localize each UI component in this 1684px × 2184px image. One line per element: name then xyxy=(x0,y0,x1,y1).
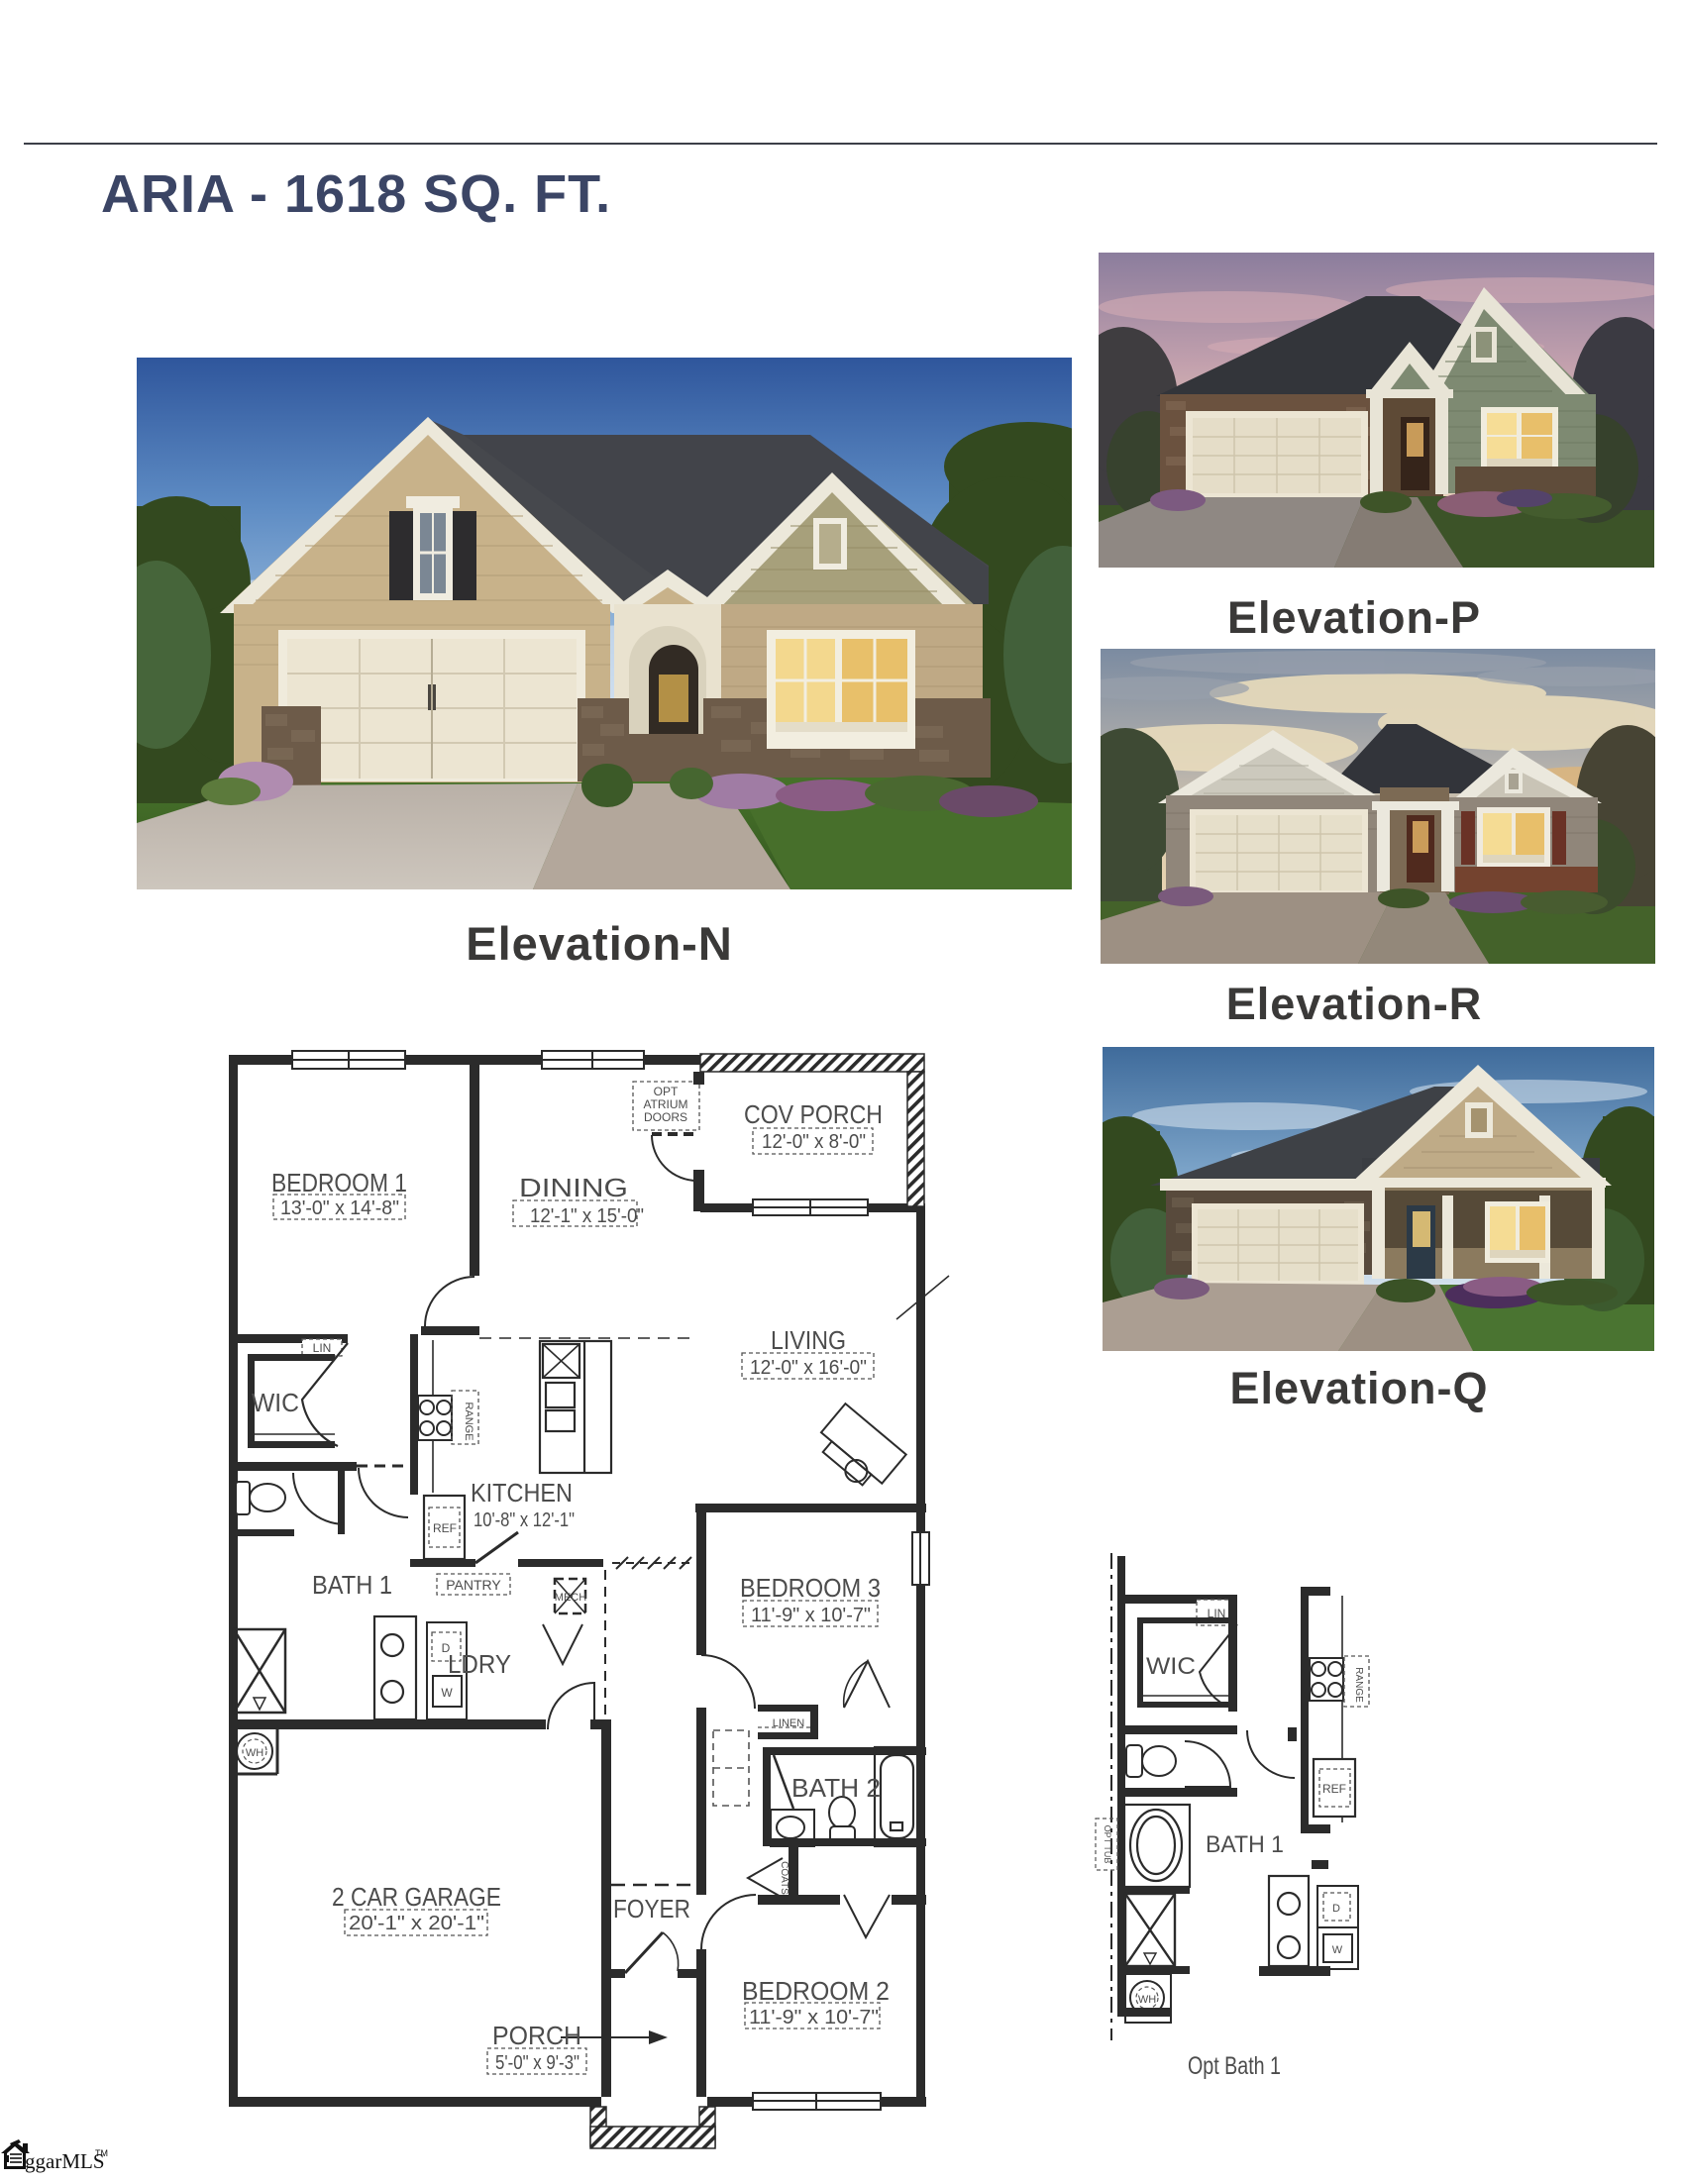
svg-text:ggarMLS: ggarMLS xyxy=(25,2149,105,2173)
svg-text:11'-9" x 10'-7": 11'-9" x 10'-7" xyxy=(751,1605,871,1626)
svg-text:DINING: DINING xyxy=(519,1173,628,1202)
svg-text:WIC: WIC xyxy=(1146,1653,1196,1680)
svg-text:D: D xyxy=(1332,1903,1340,1915)
svg-text:12'-1" x 15'-0": 12'-1" x 15'-0" xyxy=(530,1205,644,1227)
svg-text:BEDROOM 2: BEDROOM 2 xyxy=(742,1976,890,2006)
svg-text:MECH: MECH xyxy=(555,1592,586,1604)
svg-text:BEDROOM 1: BEDROOM 1 xyxy=(271,1168,407,1197)
svg-text:DOORS: DOORS xyxy=(644,1110,687,1124)
svg-text:COV PORCH: COV PORCH xyxy=(744,1099,883,1129)
svg-text:RANGE: RANGE xyxy=(463,1402,474,1440)
svg-text:LDRY: LDRY xyxy=(448,1649,511,1679)
svg-text:OPT: OPT xyxy=(654,1085,679,1098)
svg-text:KITCHEN: KITCHEN xyxy=(471,1478,573,1508)
svg-text:PANTRY: PANTRY xyxy=(446,1577,501,1593)
svg-text:WH: WH xyxy=(1138,1994,1156,2006)
svg-text:13'-0" x 14'-8": 13'-0" x 14'-8" xyxy=(280,1197,399,1219)
svg-text:BATH 1: BATH 1 xyxy=(1206,1831,1284,1858)
svg-text:BATH 2: BATH 2 xyxy=(791,1773,881,1803)
svg-text:TM: TM xyxy=(95,2148,108,2158)
svg-text:LIN: LIN xyxy=(313,1341,332,1355)
svg-text:PORCH: PORCH xyxy=(492,2021,581,2050)
svg-text:ATRIUM: ATRIUM xyxy=(643,1097,687,1111)
svg-text:12'-0" x 16'-0": 12'-0" x 16'-0" xyxy=(750,1357,867,1379)
svg-text:BATH 1: BATH 1 xyxy=(312,1570,392,1600)
svg-text:W: W xyxy=(441,1686,453,1700)
svg-text:5'-0" x 9'-3": 5'-0" x 9'-3" xyxy=(495,2052,579,2074)
svg-text:12'-0" x 8'-0": 12'-0" x 8'-0" xyxy=(762,1131,866,1153)
svg-text:10'-8" x 12'-1": 10'-8" x 12'-1" xyxy=(474,1509,575,1531)
svg-text:COATS: COATS xyxy=(779,1861,789,1895)
svg-text:20'-1" x 20'-1": 20'-1" x 20'-1" xyxy=(349,1913,484,1934)
svg-text:WIC: WIC xyxy=(252,1388,299,1417)
svg-text:OPT TUB: OPT TUB xyxy=(1103,1825,1112,1864)
svg-text:Opt Bath 1: Opt Bath 1 xyxy=(1188,2052,1281,2080)
svg-text:W: W xyxy=(1332,1944,1343,1956)
svg-text:FOYER: FOYER xyxy=(613,1894,690,1924)
svg-text:REF: REF xyxy=(1322,1782,1346,1796)
svg-text:LIVING: LIVING xyxy=(771,1325,846,1355)
svg-text:BEDROOM 3: BEDROOM 3 xyxy=(740,1573,881,1603)
svg-text:11'-9" x 10'-7": 11'-9" x 10'-7" xyxy=(749,2007,879,2028)
svg-text:REF: REF xyxy=(433,1521,457,1535)
svg-text:WH: WH xyxy=(246,1747,263,1759)
svg-text:2 CAR GARAGE: 2 CAR GARAGE xyxy=(332,1882,501,1912)
svg-text:RANGE: RANGE xyxy=(1353,1667,1364,1703)
